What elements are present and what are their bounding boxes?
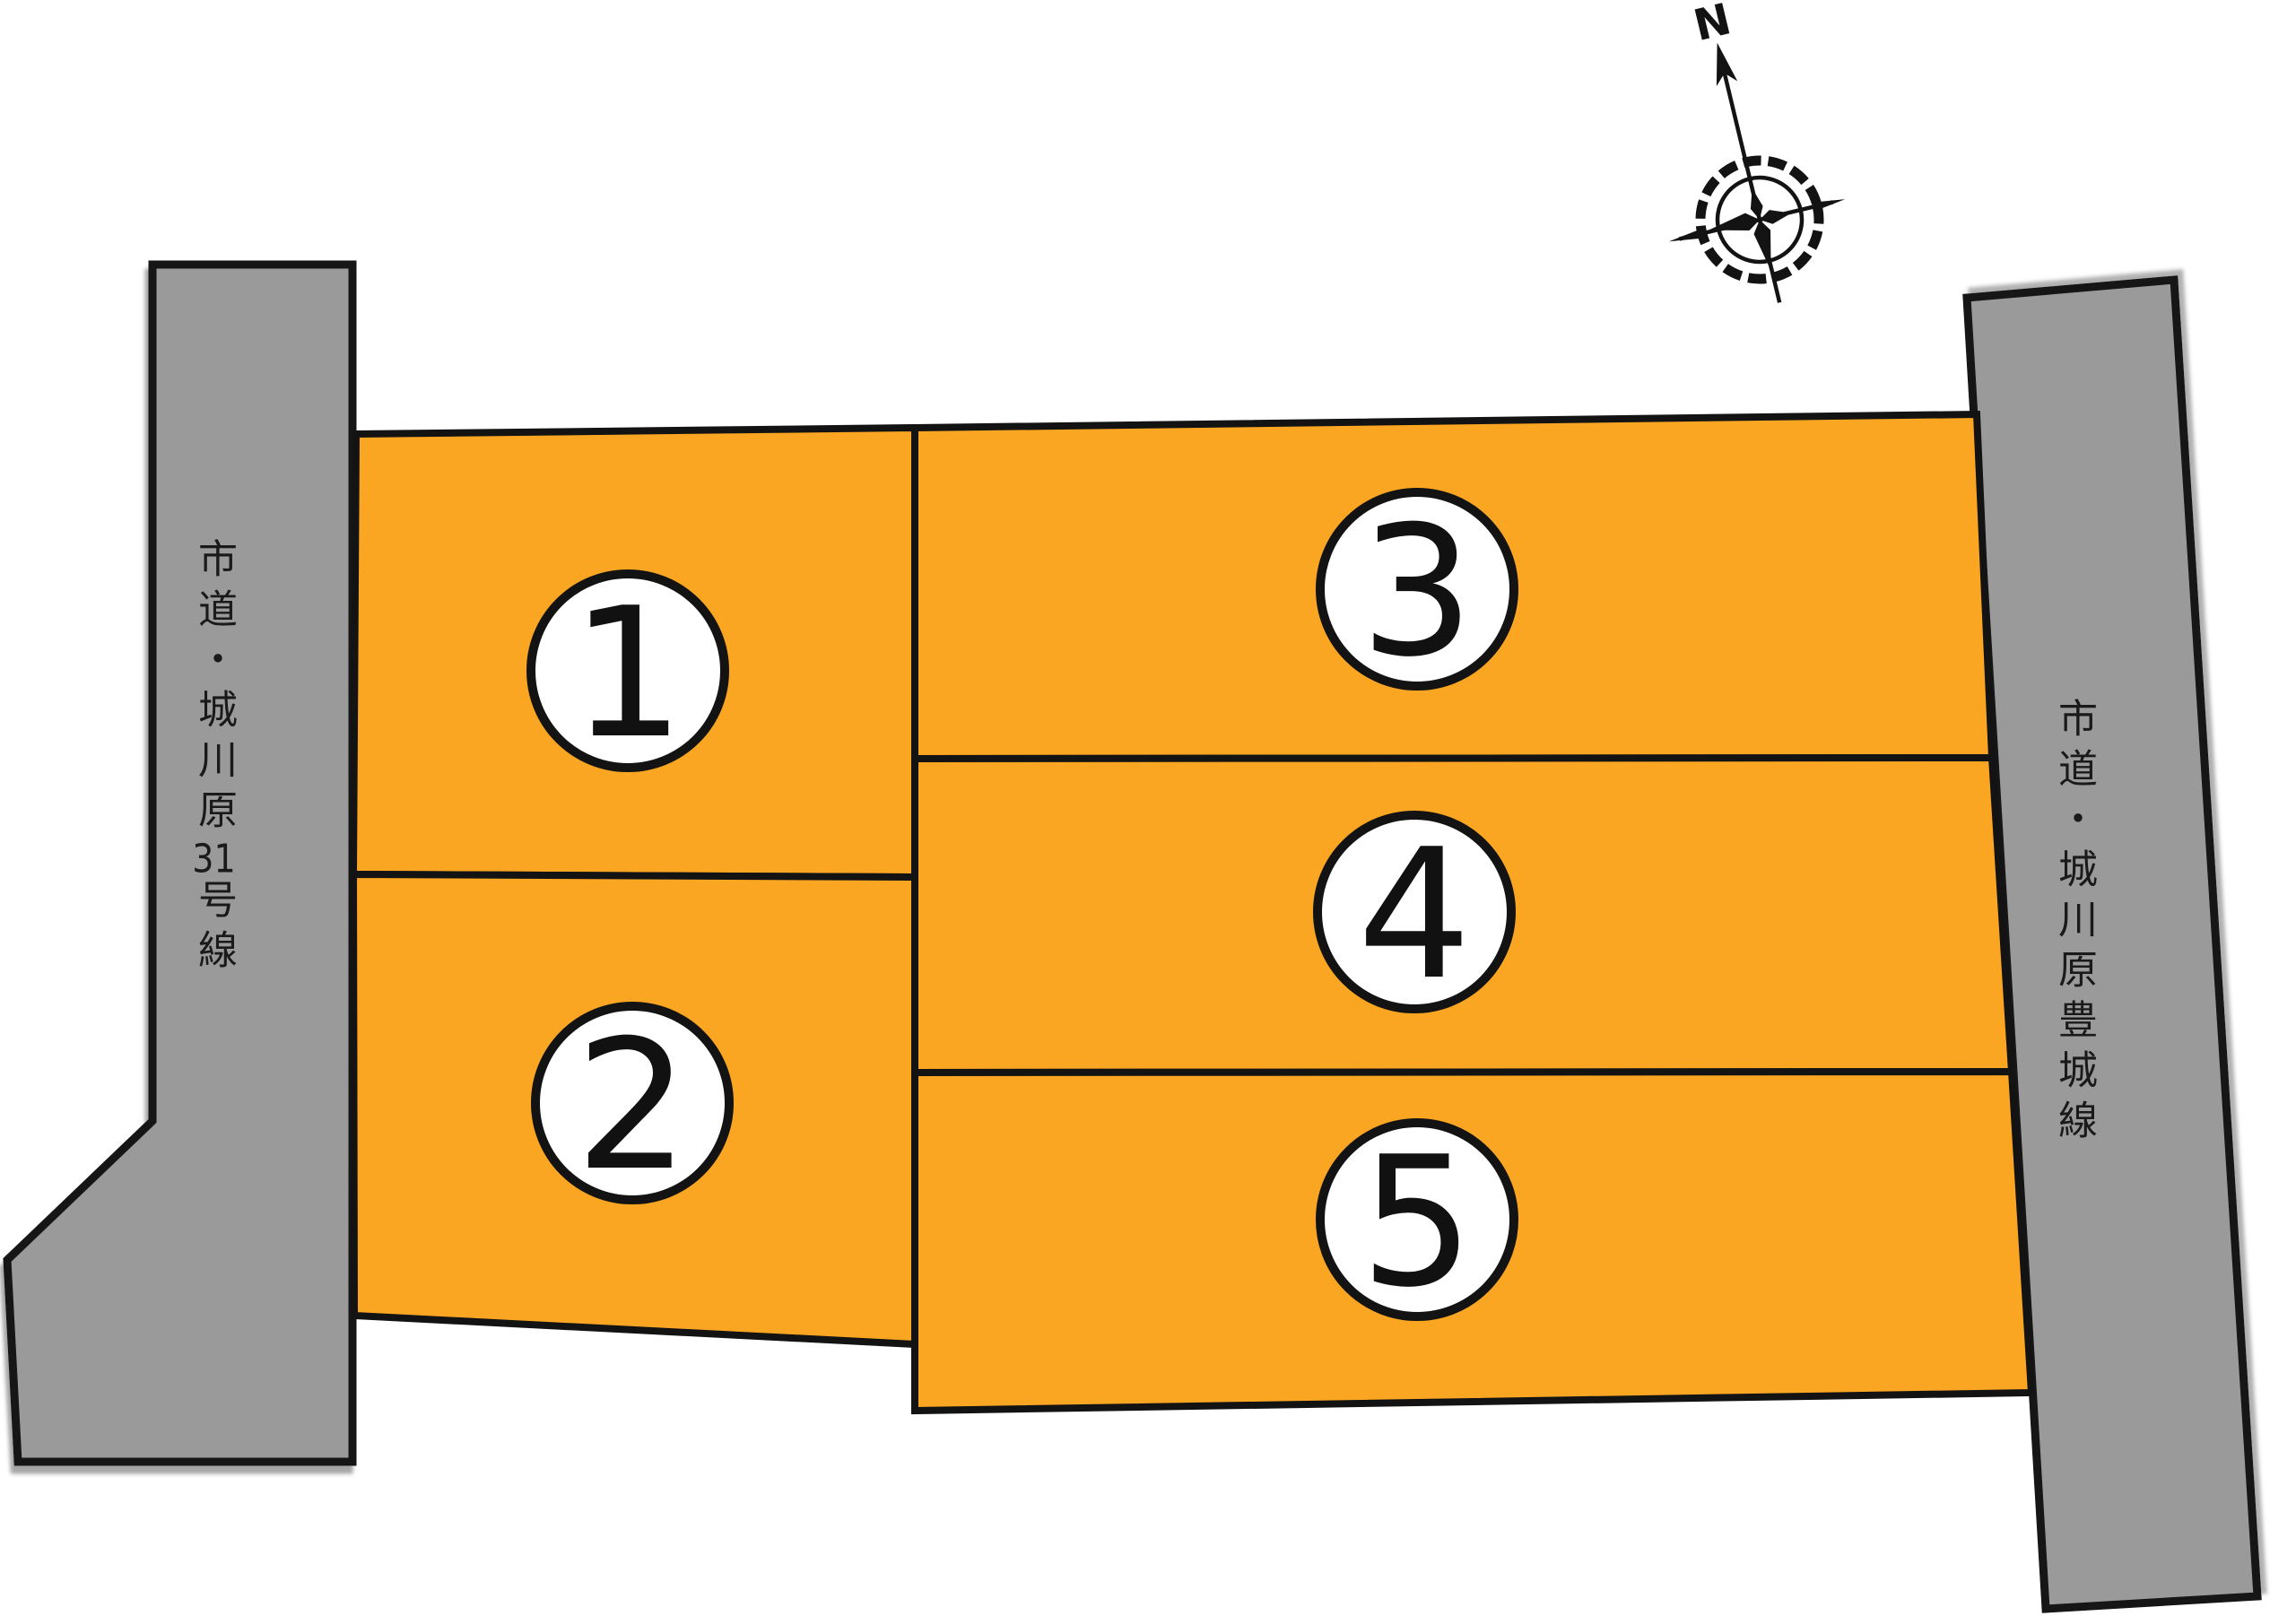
lot-3-number: 3 <box>1360 488 1474 697</box>
road-label-left-name: 市道・城川原 <box>191 538 237 839</box>
lot-5-number: 5 <box>1360 1118 1474 1327</box>
compass-rose-icon: N <box>1616 0 1865 325</box>
road-right-shape <box>1967 280 2257 1609</box>
compass-west-tip <box>1668 230 1701 246</box>
parcels <box>353 414 2031 1411</box>
lot-map-drawing: 1 2 3 4 5 <box>0 0 2296 1616</box>
lot-1-number: 1 <box>570 569 684 778</box>
road-label-left-suffix: 号線 <box>191 879 237 979</box>
compass-petal-south <box>1751 218 1779 273</box>
lot-2-number: 2 <box>575 1002 689 1211</box>
compass-north-label: N <box>1689 0 1735 51</box>
road-left-shape <box>7 265 352 1462</box>
road-label-left: 市道・城川原31号線 <box>194 538 233 979</box>
compass-petal-west <box>1707 210 1761 239</box>
road-label-right-name: 市道・城川原豊城線 <box>2051 698 2097 1150</box>
road-label-right: 市道・城川原豊城線 <box>2054 698 2093 1150</box>
lot-4-number: 4 <box>1357 811 1471 1020</box>
road-label-left-number: 31 <box>191 839 237 879</box>
lot-map-canvas: 1 2 3 4 5 <box>0 0 2296 1616</box>
